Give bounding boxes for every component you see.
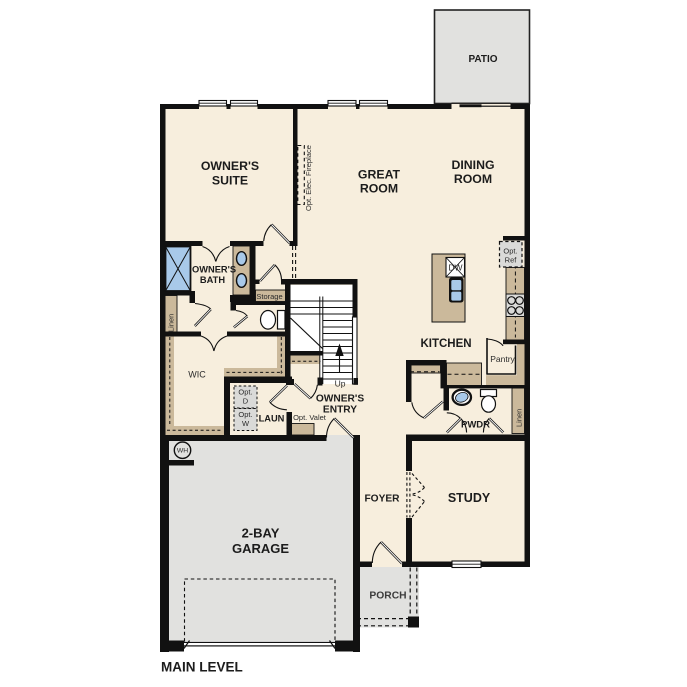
svg-text:KITCHEN: KITCHEN bbox=[420, 338, 471, 350]
svg-text:Pantry: Pantry bbox=[490, 354, 515, 364]
svg-text:Opt.: Opt. bbox=[238, 388, 252, 397]
svg-text:PORCH: PORCH bbox=[369, 591, 406, 602]
svg-text:DINING: DINING bbox=[451, 158, 494, 172]
svg-text:DW: DW bbox=[448, 263, 462, 273]
svg-text:GREAT: GREAT bbox=[358, 168, 401, 182]
svg-text:FOYER: FOYER bbox=[364, 494, 400, 505]
svg-text:Linen: Linen bbox=[515, 409, 524, 427]
svg-text:MAIN LEVEL: MAIN LEVEL bbox=[161, 660, 243, 675]
svg-text:Linen: Linen bbox=[167, 314, 176, 332]
svg-text:WH: WH bbox=[177, 448, 188, 455]
svg-text:PWDR: PWDR bbox=[461, 420, 490, 431]
svg-text:ENTRY: ENTRY bbox=[323, 405, 357, 416]
svg-text:W: W bbox=[242, 419, 250, 428]
svg-text:OWNER'S: OWNER'S bbox=[201, 159, 259, 173]
svg-text:STUDY: STUDY bbox=[448, 491, 491, 505]
svg-text:OWNER'S: OWNER'S bbox=[192, 265, 236, 275]
svg-text:GARAGE: GARAGE bbox=[232, 541, 289, 556]
svg-text:D: D bbox=[243, 397, 249, 406]
svg-text:2-BAY: 2-BAY bbox=[242, 526, 280, 541]
svg-text:Storage: Storage bbox=[256, 292, 282, 301]
svg-text:ROOM: ROOM bbox=[454, 172, 492, 186]
svg-text:Up: Up bbox=[335, 379, 346, 389]
svg-text:Opt.: Opt. bbox=[238, 410, 252, 419]
svg-text:LAUN: LAUN bbox=[259, 414, 285, 424]
svg-text:SUITE: SUITE bbox=[212, 174, 248, 188]
svg-text:BATH: BATH bbox=[200, 275, 225, 285]
svg-text:OWNER'S: OWNER'S bbox=[316, 394, 364, 405]
svg-text:Opt.: Opt. bbox=[503, 247, 517, 256]
svg-text:Opt. Valet: Opt. Valet bbox=[293, 413, 327, 422]
svg-text:Opt. Elec. Fireplace: Opt. Elec. Fireplace bbox=[304, 145, 313, 211]
svg-text:ROOM: ROOM bbox=[360, 182, 398, 196]
svg-text:WIC: WIC bbox=[188, 370, 206, 380]
svg-text:Ref: Ref bbox=[505, 256, 518, 265]
svg-text:PATIO: PATIO bbox=[468, 54, 497, 65]
